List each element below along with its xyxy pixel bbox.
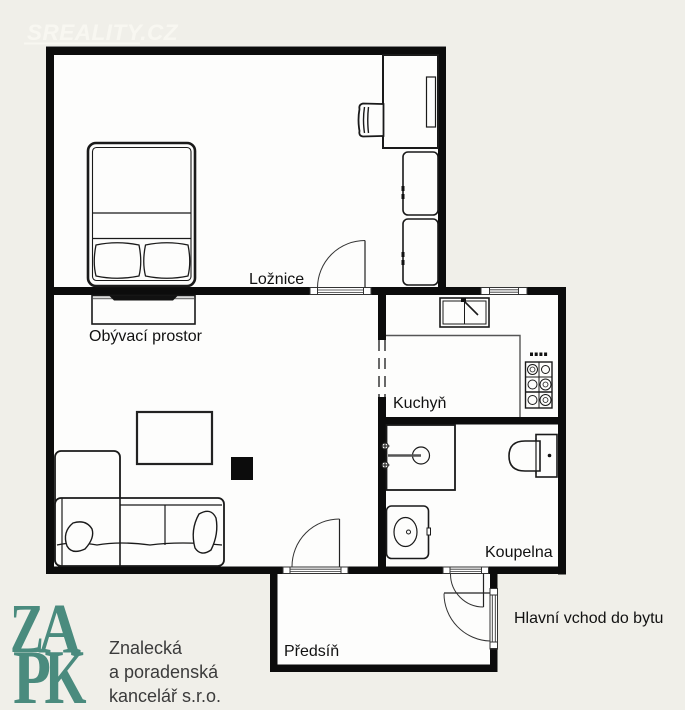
svg-text:Ložnice: Ložnice (249, 271, 304, 288)
svg-text:Kuchyň: Kuchyň (393, 395, 446, 412)
svg-text:SREALITY.CZ: SREALITY.CZ (27, 20, 179, 45)
svg-text:Hlavní vchod do bytu: Hlavní vchod do bytu (514, 610, 663, 627)
svg-text:Předsíň: Předsíň (284, 643, 339, 660)
svg-text:Znalecká: Znalecká (109, 638, 183, 658)
svg-text:Koupelna: Koupelna (485, 544, 553, 561)
svg-text:Obývací prostor: Obývací prostor (89, 328, 203, 345)
svg-text:kancelář s.r.o.: kancelář s.r.o. (109, 686, 221, 706)
svg-text:K: K (45, 634, 87, 710)
svg-text:a poradenská: a poradenská (109, 662, 219, 682)
